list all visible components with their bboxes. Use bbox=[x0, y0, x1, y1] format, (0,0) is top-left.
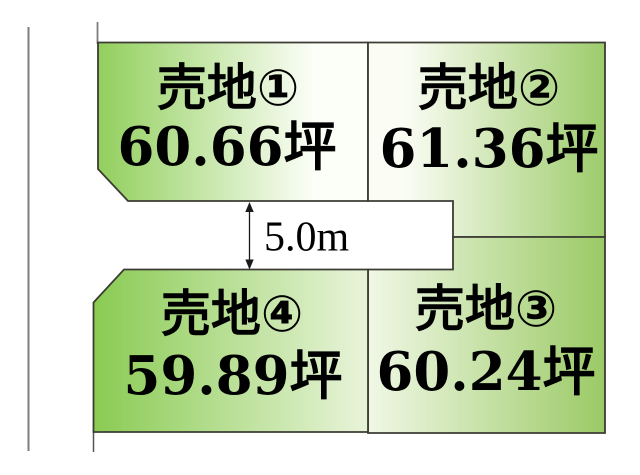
plot-1-area-label: 60.66坪 bbox=[118, 116, 337, 178]
site-plan-page: 5.0m 売地① 60.66坪 売地② 61.36坪 売地③ 60.24坪 売地… bbox=[0, 0, 640, 475]
plot-4-area-label: 59.89坪 bbox=[124, 345, 343, 407]
plot-4-name-label: 売地④ bbox=[161, 285, 303, 343]
plot-3-name-label: 売地③ bbox=[415, 280, 557, 338]
road-width-label: 5.0m bbox=[264, 215, 350, 261]
plot-3-area-label: 60.24坪 bbox=[377, 341, 596, 403]
plot-2-area-label: 61.36坪 bbox=[380, 118, 599, 180]
plot-2-name-label: 売地② bbox=[418, 59, 560, 117]
site-plan-diagram: 5.0m 売地① 60.66坪 売地② 61.36坪 売地③ 60.24坪 売地… bbox=[0, 0, 640, 475]
plot-1-name-label: 売地① bbox=[157, 59, 299, 117]
